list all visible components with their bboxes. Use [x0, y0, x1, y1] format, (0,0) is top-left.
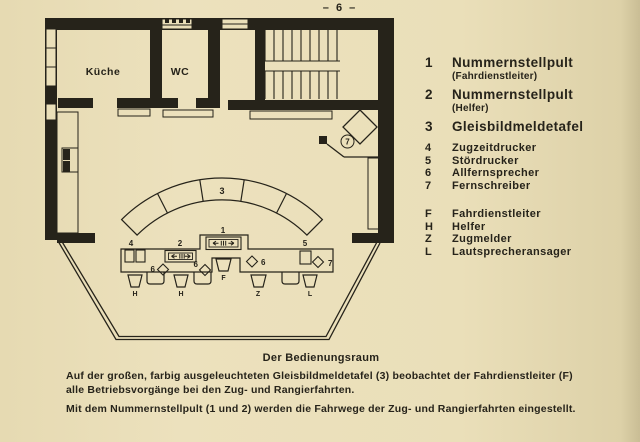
- legend-key-6: 6: [425, 168, 452, 180]
- teleprinter7-desk-label: 7: [328, 259, 333, 268]
- legend-label-4: Zugzeitdrucker: [452, 143, 536, 155]
- seat-h2-label: H: [178, 291, 183, 298]
- legend-key-7: 7: [425, 181, 452, 193]
- seat-z-label: Z: [256, 291, 261, 298]
- legend-key-z: Z: [425, 234, 452, 246]
- legend-key-2: 2: [425, 87, 452, 102]
- legend-key-h: H: [425, 222, 452, 234]
- legend-group-persons: F Fahrdienstleiter H Helfer Z Zugmelder …: [425, 209, 635, 258]
- teleprinter7-desk-box: [313, 257, 324, 268]
- legend-label-6: Allfernsprecher: [452, 168, 539, 180]
- legend-item-6: 6 Allfernsprecher: [425, 168, 635, 180]
- legend-key-4: 4: [425, 143, 452, 155]
- legend-label-z: Zugmelder: [452, 234, 512, 246]
- legend-item-4: 4 Zugzeitdrucker: [425, 143, 635, 155]
- legend-item-h: H Helfer: [425, 222, 635, 234]
- legend-sublabel-1: (Fahrdienstleiter): [452, 71, 573, 83]
- benches: [118, 109, 332, 119]
- legend-item-2: 2 Nummernstellpult (Helfer): [425, 87, 635, 115]
- seat-f: [216, 259, 231, 271]
- legend-key-1: 1: [425, 55, 452, 70]
- legend-label-3: Gleisbildmeldetafel: [452, 119, 583, 134]
- floor-plan: 7 3: [0, 0, 420, 352]
- legend-item-l: L Lautsprecheransager: [425, 247, 635, 259]
- legend-item-1: 1 Nummernstellpult (Fahrdienstleiter): [425, 55, 635, 83]
- legend-item-f: F Fahrdienstleiter: [425, 209, 635, 221]
- legend-item-3: 3 Gleisbildmeldetafel: [425, 119, 635, 134]
- legend-key-3: 3: [425, 119, 452, 134]
- seat-z: [251, 275, 266, 287]
- walls: [45, 18, 394, 243]
- console1-label: 1: [221, 226, 226, 235]
- legend-label-1: Nummernstellpult: [452, 55, 573, 70]
- seat-l-label: L: [308, 291, 313, 298]
- legend-label-l: Lautsprecheransager: [452, 247, 571, 259]
- seat-l: [303, 275, 317, 287]
- legend-item-7: 7 Fernschreiber: [425, 181, 635, 193]
- panel3-label: 3: [219, 186, 224, 196]
- scanned-page: { "page": { "number": "– 6 –", "paper_co…: [0, 0, 640, 442]
- legend-group-devices: 4 Zugzeitdrucker 5 Stördrucker 6 Allfern…: [425, 143, 635, 192]
- seat-f-label: F: [221, 275, 226, 282]
- printer4-box-a: [125, 250, 134, 262]
- caption-title: Der Bedienungsraum: [66, 352, 594, 364]
- legend-group-main: 1 Nummernstellpult (Fahrdienstleiter) 2 …: [425, 55, 635, 134]
- phone6-left-label: 6: [151, 265, 156, 274]
- cabinet-cells: [63, 149, 70, 172]
- printer4-box-b: [136, 250, 145, 262]
- legend-item-5: 5 Stördrucker: [425, 156, 635, 168]
- legend-key-5: 5: [425, 156, 452, 168]
- printer5-label: 5: [303, 239, 308, 248]
- phone6-mid-label: 6: [194, 260, 199, 269]
- legend-label-f: Fahrdienstleiter: [452, 209, 541, 221]
- seat-h1: [128, 275, 142, 287]
- bay-windows: [58, 240, 380, 340]
- legend-sublabel-2: (Helfer): [452, 103, 573, 115]
- caption-paragraph-1: Auf der großen, farbig ausgeleuchteten G…: [66, 370, 594, 397]
- seat-h2: [174, 275, 188, 287]
- wall-counters: [57, 112, 378, 233]
- printer5-box: [300, 251, 311, 264]
- phone6-right: [247, 256, 258, 267]
- seat-h1-label: H: [132, 291, 137, 298]
- staircase: [263, 30, 340, 99]
- console2-label: 2: [178, 239, 183, 248]
- caption-paragraph-2: Mit dem Nummernstellpult (1 und 2) werde…: [66, 403, 594, 417]
- wc-label: WC: [171, 66, 190, 78]
- legend-key-l: L: [425, 247, 452, 259]
- console2-panel: [165, 251, 196, 263]
- teleprinter-corner: [327, 110, 378, 157]
- phone6-mid: [200, 265, 211, 276]
- kitchen-label: Küche: [86, 66, 121, 78]
- phone6-left: [158, 264, 169, 275]
- printer4-label: 4: [129, 239, 134, 248]
- phone6-right-label: 6: [261, 258, 266, 267]
- legend-label-h: Helfer: [452, 222, 486, 234]
- seats: [128, 259, 317, 287]
- legend-label-7: Fernschreiber: [452, 181, 531, 193]
- legend: 1 Nummernstellpult (Fahrdienstleiter) 2 …: [425, 55, 635, 259]
- legend-key-f: F: [425, 209, 452, 221]
- caption: Der Bedienungsraum Auf der großen, farbi…: [66, 352, 594, 417]
- legend-label-5: Stördrucker: [452, 156, 519, 168]
- teleprinter-corner-label: 7: [345, 138, 350, 147]
- legend-label-2: Nummernstellpult: [452, 87, 573, 102]
- legend-item-z: Z Zugmelder: [425, 234, 635, 246]
